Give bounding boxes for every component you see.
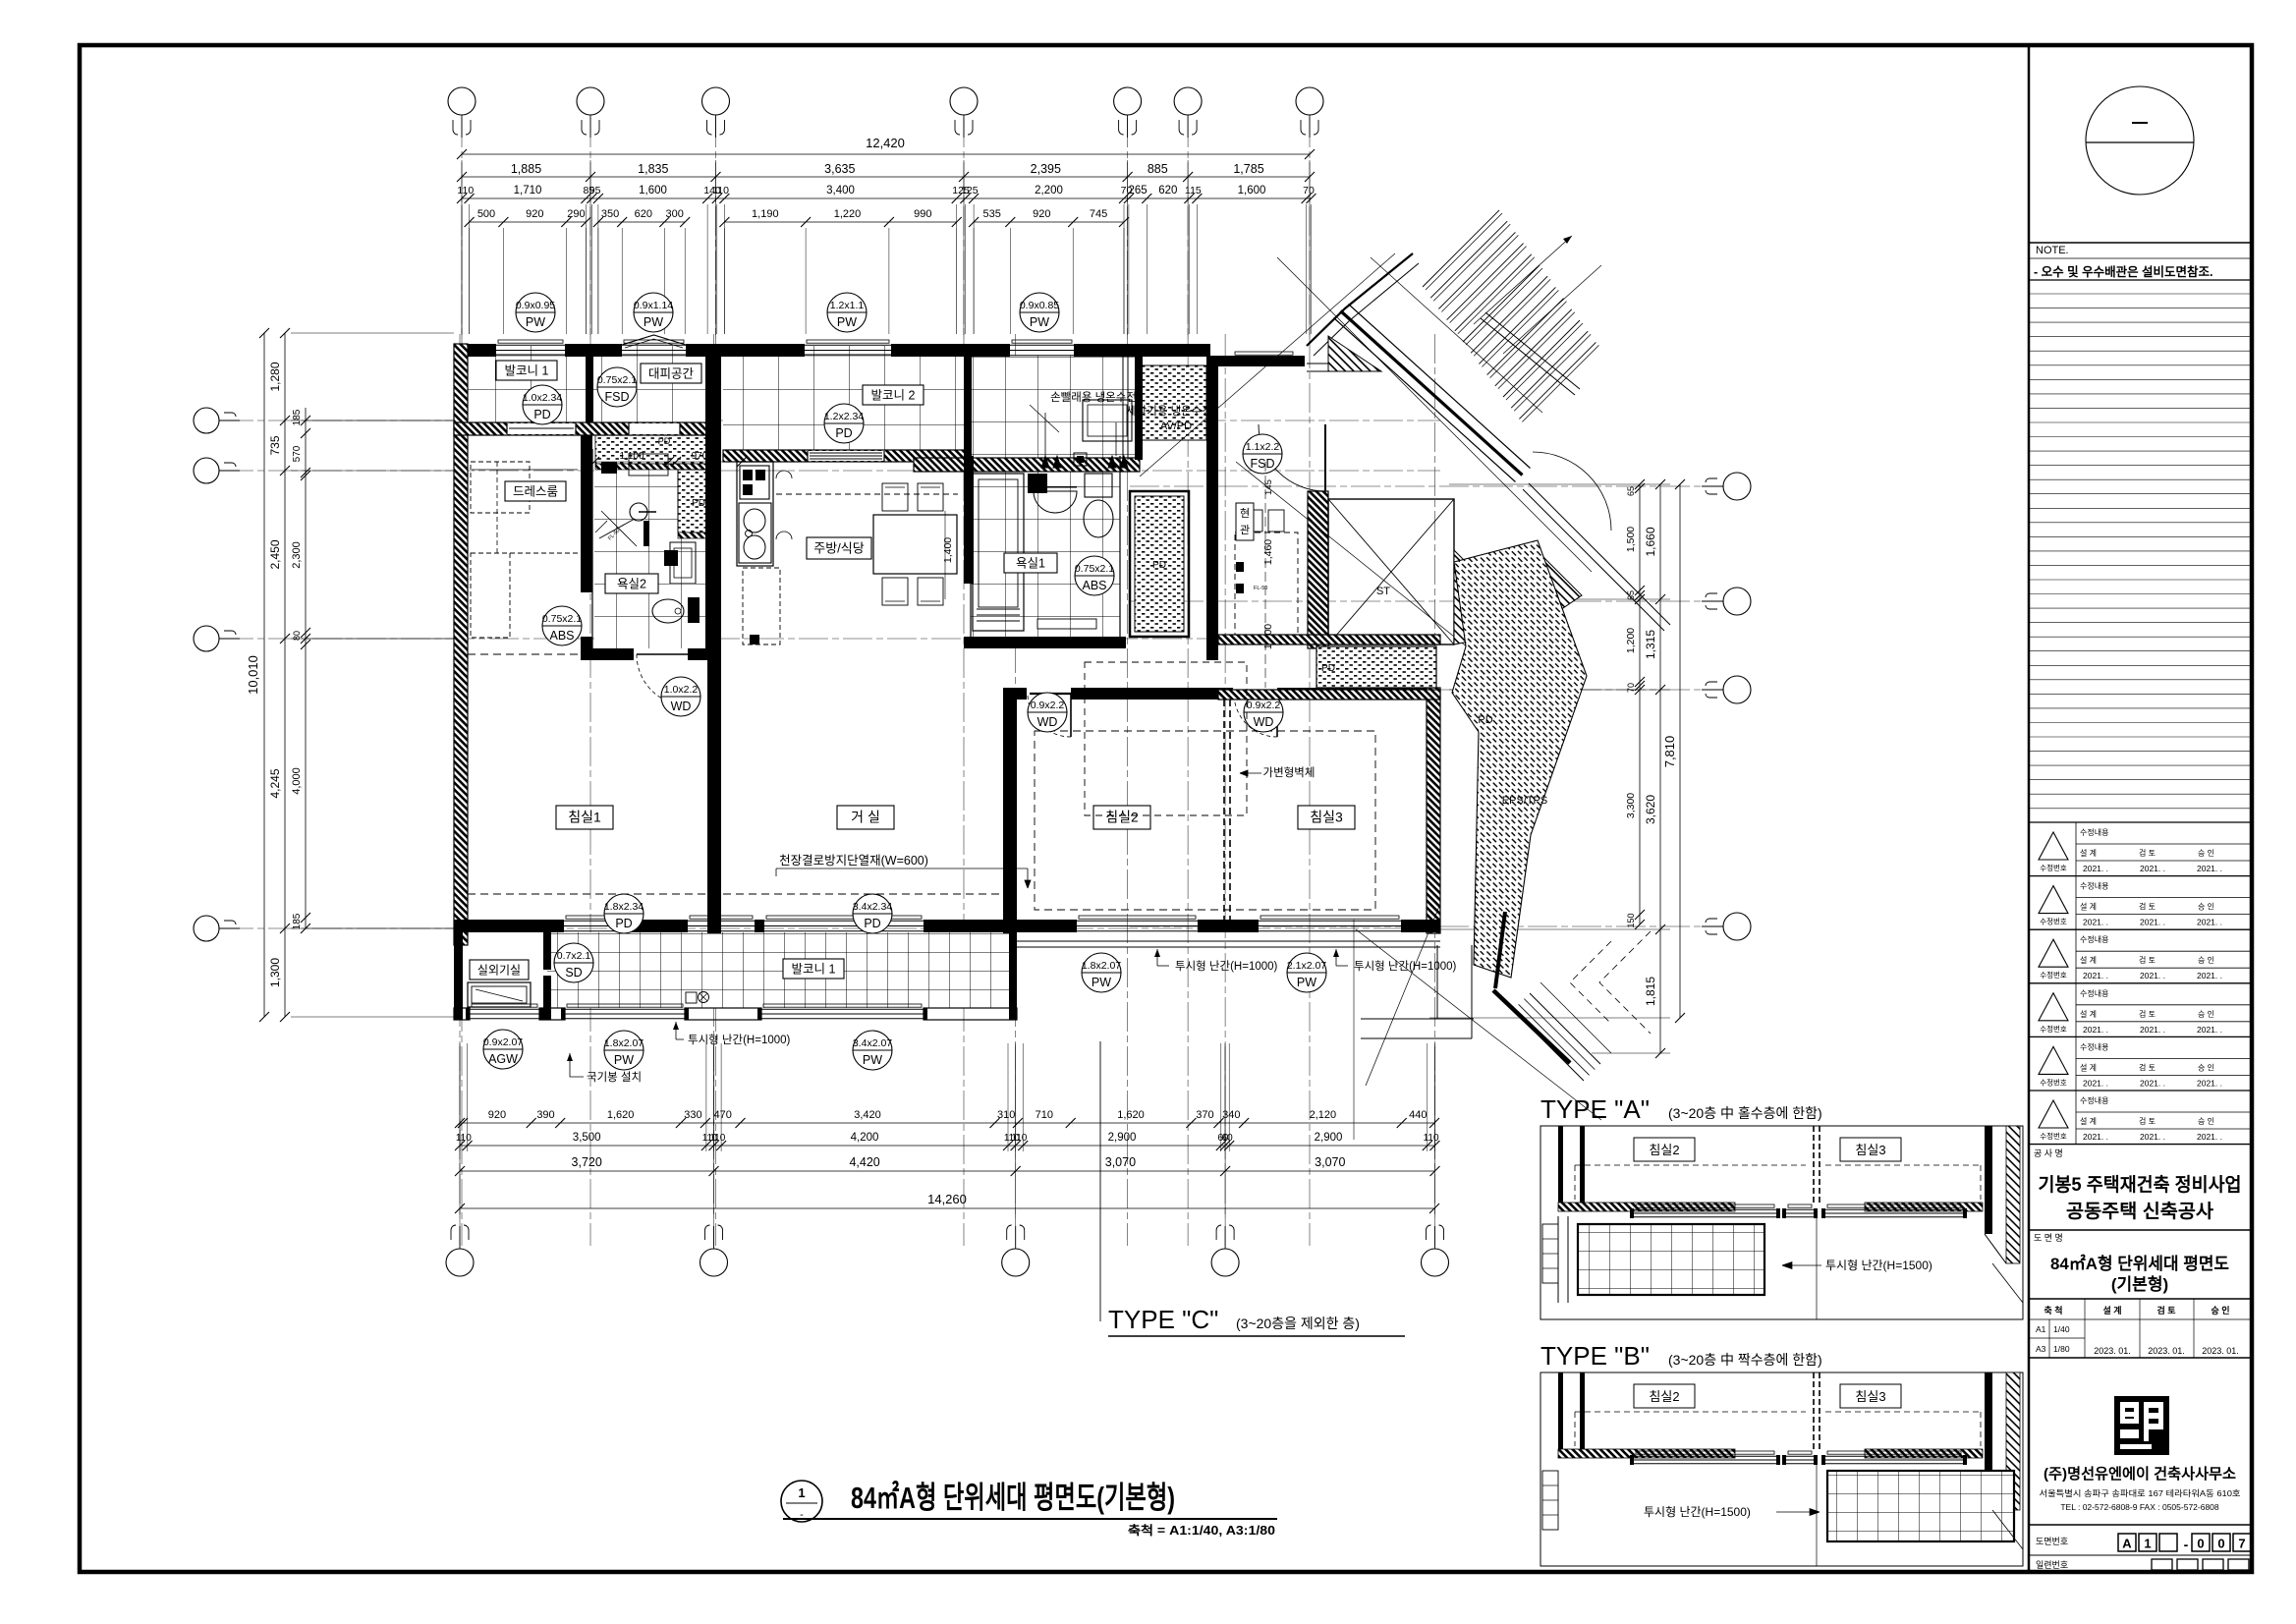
svg-text:2021. .: 2021. . (2140, 971, 2165, 980)
svg-text:PW: PW (526, 315, 545, 329)
svg-text:14,260: 14,260 (927, 1192, 967, 1206)
svg-text:1/80: 1/80 (2053, 1344, 2070, 1354)
svg-text:290: 290 (567, 208, 585, 220)
svg-text:70: 70 (1303, 185, 1315, 196)
svg-text:500: 500 (477, 208, 495, 220)
svg-text:350: 350 (601, 208, 619, 220)
svg-text:0.9x0.95: 0.9x0.95 (516, 300, 555, 311)
svg-text:수정번호: 수정번호 (2040, 1131, 2067, 1141)
svg-text:710: 710 (1036, 1109, 1053, 1121)
svg-text:투시형 난간(H=1000): 투시형 난간(H=1000) (688, 1034, 791, 1046)
svg-text:PD: PD (692, 498, 705, 509)
svg-text:1.2x1.1: 1.2x1.1 (830, 300, 865, 311)
svg-text:265: 265 (1129, 185, 1148, 196)
svg-text:2023. 01.: 2023. 01. (2094, 1346, 2131, 1356)
svg-text:0.7x2.1: 0.7x2.1 (557, 950, 591, 962)
svg-text:NOTE.: NOTE. (2036, 245, 2069, 256)
svg-text:투시형 난간(H=1500): 투시형 난간(H=1500) (1644, 1505, 1751, 1519)
svg-text:1.0x2.2: 1.0x2.2 (664, 684, 699, 696)
svg-text:FSD: FSD (605, 390, 630, 404)
svg-text:620: 620 (1158, 185, 1177, 196)
svg-text:2021. .: 2021. . (2140, 864, 2165, 873)
svg-text:욕실2: 욕실2 (617, 578, 646, 591)
svg-text:4,245: 4,245 (268, 768, 282, 798)
svg-text:990: 990 (914, 208, 931, 220)
svg-text:A1: A1 (2036, 1324, 2046, 1334)
svg-text:드레스룸: 드레스룸 (513, 485, 558, 499)
svg-text:0.75x2.1: 0.75x2.1 (597, 374, 637, 386)
svg-text:- 오수 및 우수배관은 설비도면참조.: - 오수 및 우수배관은 설비도면참조. (2034, 264, 2213, 279)
svg-text:수정내용: 수정내용 (2080, 881, 2108, 891)
svg-text:7,810: 7,810 (1662, 736, 1677, 768)
svg-text:4,000: 4,000 (291, 767, 303, 795)
svg-text:1,300: 1,300 (268, 958, 282, 987)
svg-text:1,600: 1,600 (1238, 185, 1266, 196)
svg-text:TYPE "C": TYPE "C" (1108, 1305, 1218, 1334)
svg-text:1,600: 1,600 (639, 185, 667, 196)
svg-text:65: 65 (1626, 486, 1636, 496)
svg-text:3,720: 3,720 (572, 1155, 602, 1169)
svg-text:PD: PD (864, 917, 880, 930)
svg-text:발코니 1: 발코니 1 (505, 364, 549, 378)
svg-text:PD: PD (658, 436, 671, 446)
svg-text:축척 = A1:1/40, A3:1/80: 축척 = A1:1/40, A3:1/80 (1128, 1523, 1275, 1538)
svg-text:투시형 난간(H=1000): 투시형 난간(H=1000) (1175, 960, 1278, 973)
svg-text:발코니 2: 발코니 2 (871, 389, 916, 403)
svg-text:0: 0 (2197, 1537, 2204, 1551)
svg-text:3,400: 3,400 (826, 185, 855, 196)
svg-text:(3~20층을 제외한 층): (3~20층을 제외한 층) (1236, 1316, 1360, 1331)
svg-text:2,120: 2,120 (1310, 1109, 1337, 1121)
svg-text:검 토: 검 토 (2156, 1305, 2176, 1316)
svg-text:330: 330 (684, 1109, 701, 1121)
svg-text:3,500: 3,500 (573, 1132, 601, 1144)
svg-text:손빨래용 냉온수전: 손빨래용 냉온수전 (1050, 391, 1137, 404)
svg-text:4,200: 4,200 (851, 1132, 879, 1144)
svg-text:1,710: 1,710 (514, 185, 542, 196)
svg-text:2021. .: 2021. . (2140, 1025, 2165, 1035)
svg-text:110: 110 (456, 1133, 472, 1144)
svg-text:3,635: 3,635 (824, 162, 855, 176)
svg-text:2021. .: 2021. . (2140, 918, 2165, 927)
svg-text:1: 1 (798, 1485, 805, 1500)
svg-text:PW: PW (837, 315, 857, 329)
svg-text:도 면 명: 도 면 명 (2034, 1233, 2063, 1243)
svg-text:2021. .: 2021. . (2140, 1078, 2165, 1088)
svg-text:440: 440 (1409, 1109, 1427, 1121)
svg-text:TYPE "A": TYPE "A" (1540, 1094, 1650, 1124)
svg-text:3,620: 3,620 (1644, 795, 1657, 824)
svg-text:검 토: 검 토 (2139, 1009, 2156, 1019)
svg-text:승 인: 승 인 (2211, 1306, 2229, 1316)
svg-text:60: 60 (1222, 1133, 1234, 1144)
svg-text:2021. .: 2021. . (2197, 918, 2222, 927)
svg-text:110: 110 (709, 1133, 725, 1144)
svg-text:(기본형): (기본형) (2111, 1274, 2168, 1294)
svg-text:일련번호: 일련번호 (2036, 1560, 2068, 1570)
svg-text:4,420: 4,420 (849, 1155, 879, 1169)
svg-text:310: 310 (997, 1109, 1015, 1121)
svg-text:승 인: 승 인 (2198, 848, 2214, 858)
svg-text:1,815: 1,815 (1644, 977, 1657, 1006)
svg-text:세탁기용 냉온수전: 세탁기용 냉온수전 (1126, 405, 1212, 418)
svg-text:1,400: 1,400 (942, 537, 954, 563)
svg-text:1.8x2.34: 1.8x2.34 (604, 901, 644, 913)
svg-text:침실3: 침실3 (1855, 1389, 1885, 1404)
svg-text:검 토: 검 토 (2139, 848, 2156, 858)
svg-text:ABS: ABS (549, 629, 574, 643)
svg-text:WD: WD (1037, 715, 1058, 729)
svg-text:3,420: 3,420 (854, 1109, 881, 1121)
svg-text:검 토: 검 토 (2139, 1062, 2156, 1072)
svg-text:설 계: 설 계 (2080, 902, 2097, 912)
svg-text:수정번호: 수정번호 (2040, 1024, 2067, 1034)
svg-text:3,070: 3,070 (1315, 1155, 1345, 1169)
svg-text:3.4x2.34: 3.4x2.34 (853, 901, 892, 913)
svg-text:1,620: 1,620 (607, 1109, 635, 1121)
svg-text:검 토: 검 토 (2139, 902, 2156, 912)
svg-text:0.9x1.14: 0.9x1.14 (634, 300, 673, 311)
svg-text:수정내용: 수정내용 (2080, 1095, 2108, 1105)
svg-text:ST: ST (1376, 586, 1390, 597)
svg-text:2,450: 2,450 (268, 539, 282, 569)
svg-text:2021. .: 2021. . (2083, 1025, 2108, 1035)
svg-text:수정내용: 수정내용 (2080, 934, 2108, 944)
svg-text:2021. .: 2021. . (2197, 1078, 2222, 1088)
svg-text:1.8x2.07: 1.8x2.07 (604, 1037, 644, 1049)
svg-text:FSD: FSD (1251, 457, 1275, 471)
svg-text:115: 115 (1185, 185, 1202, 196)
svg-text:거 실: 거 실 (851, 810, 880, 825)
svg-text:535: 535 (983, 208, 1001, 220)
svg-text:축 척: 축 척 (2044, 1305, 2062, 1316)
svg-text:대피공간: 대피공간 (648, 367, 695, 381)
svg-text:150: 150 (1626, 913, 1636, 927)
svg-text:PD: PD (1478, 714, 1492, 726)
svg-text:수정번호: 수정번호 (2040, 863, 2067, 872)
svg-text:EPS/TPS: EPS/TPS (1502, 795, 1547, 807)
svg-text:1,315: 1,315 (1644, 630, 1657, 659)
svg-text:A: A (2122, 1537, 2132, 1551)
svg-text:970: 970 (692, 451, 708, 462)
svg-text:주방/식당: 주방/식당 (813, 541, 864, 556)
svg-text:1.0x2.34: 1.0x2.34 (523, 392, 562, 404)
svg-text:WD: WD (1254, 715, 1274, 729)
svg-text:PD: PD (1152, 560, 1166, 571)
svg-text:침실3: 침실3 (1855, 1143, 1885, 1157)
svg-text:수정내용: 수정내용 (2080, 827, 2108, 837)
svg-text:PW: PW (1030, 315, 1049, 329)
svg-text:2021. .: 2021. . (2083, 864, 2108, 873)
svg-text:TEL : 02-572-6808-9 FAX : 0505: TEL : 02-572-6808-9 FAX : 0505-572-6808 (2060, 1502, 2219, 1512)
svg-text:0.75x2.1: 0.75x2.1 (542, 613, 582, 625)
svg-text:2,900: 2,900 (1108, 1132, 1137, 1144)
svg-text:185: 185 (292, 409, 303, 425)
svg-text:2.1x2.07: 2.1x2.07 (1287, 960, 1326, 972)
svg-text:0.9x0.85: 0.9x0.85 (1020, 300, 1059, 311)
svg-text:1,660: 1,660 (1644, 527, 1657, 556)
svg-text:390: 390 (536, 1109, 554, 1121)
svg-text:2,200: 2,200 (1035, 185, 1063, 196)
svg-text:125: 125 (961, 185, 979, 196)
svg-text:기봉5 주택재건축 정비사업: 기봉5 주택재건축 정비사업 (2039, 1174, 2242, 1196)
svg-text:PD: PD (533, 408, 550, 421)
svg-text:185: 185 (292, 913, 303, 929)
svg-text:국기봉 설치: 국기봉 설치 (587, 1071, 642, 1084)
svg-text:1.2x2.34: 1.2x2.34 (824, 411, 864, 422)
svg-text:수정번호: 수정번호 (2040, 917, 2067, 926)
svg-text:PW: PW (1092, 976, 1111, 989)
svg-text:침실2: 침실2 (1105, 810, 1139, 825)
svg-text:2021. .: 2021. . (2083, 971, 2108, 980)
svg-text:300: 300 (666, 208, 684, 220)
svg-text:승 인: 승 인 (2198, 1062, 2214, 1072)
svg-text:3.4x2.07: 3.4x2.07 (853, 1037, 892, 1049)
svg-text:침실2: 침실2 (1649, 1143, 1679, 1157)
svg-text:검 토: 검 토 (2139, 1116, 2156, 1126)
svg-text:(3~20층 中 짝수층에 한함): (3~20층 中 짝수층에 한함) (1668, 1352, 1822, 1368)
svg-text:공 사 명: 공 사 명 (2034, 1148, 2063, 1158)
svg-text:1,200: 1,200 (1625, 628, 1637, 653)
svg-text:WD: WD (671, 700, 692, 713)
svg-text:84㎡A형 단위세대 평면도: 84㎡A형 단위세대 평면도 (2050, 1254, 2229, 1273)
svg-text:TYPE "B": TYPE "B" (1540, 1341, 1650, 1371)
svg-text:승 인: 승 인 (2198, 902, 2214, 912)
svg-text:1/40: 1/40 (2053, 1324, 2070, 1334)
svg-text:70: 70 (1626, 683, 1636, 693)
svg-text:PW: PW (614, 1053, 634, 1067)
svg-text:수정내용: 수정내용 (2080, 1041, 2108, 1051)
svg-text:2021. .: 2021. . (2197, 864, 2222, 873)
svg-text:수정내용: 수정내용 (2080, 988, 2108, 998)
svg-text:침실1: 침실1 (568, 810, 601, 825)
svg-text:12,420: 12,420 (866, 136, 905, 150)
svg-text:1.1x2.2: 1.1x2.2 (1246, 441, 1280, 453)
svg-text:920: 920 (1033, 208, 1050, 220)
svg-text:설 계: 설 계 (2080, 1062, 2097, 1072)
svg-text:2,300: 2,300 (291, 541, 303, 569)
svg-text:-: - (2184, 1537, 2189, 1552)
svg-text:(3~20층 中 홀수층에 한함): (3~20층 中 홀수층에 한함) (1668, 1105, 1822, 1121)
svg-text:2023. 01.: 2023. 01. (2148, 1346, 2185, 1356)
svg-text:2021. .: 2021. . (2197, 971, 2222, 980)
svg-text:수정번호: 수정번호 (2040, 1077, 2067, 1087)
svg-text:승 인: 승 인 (2198, 1009, 2214, 1019)
svg-text:A3: A3 (2036, 1344, 2046, 1354)
svg-text:설 계: 설 계 (2080, 1009, 2097, 1019)
svg-text:PW: PW (644, 315, 663, 329)
svg-text:2021. .: 2021. . (2140, 1132, 2165, 1142)
svg-text:도면번호: 도면번호 (2036, 1537, 2068, 1546)
svg-text:1,220: 1,220 (834, 208, 862, 220)
svg-text:0.9x2.2: 0.9x2.2 (1031, 700, 1065, 711)
svg-text:AV/PD: AV/PD (1160, 420, 1192, 432)
svg-text:84㎡A형 단위세대 평면도(기본형): 84㎡A형 단위세대 평면도(기본형) (851, 1481, 1175, 1515)
svg-text:AGW: AGW (488, 1052, 518, 1066)
svg-text:0: 0 (2217, 1537, 2224, 1551)
svg-text:검 토: 검 토 (2139, 955, 2156, 965)
svg-text:관: 관 (1240, 524, 1250, 536)
svg-text:110: 110 (1011, 1133, 1027, 1144)
svg-text:수정번호: 수정번호 (2040, 970, 2067, 980)
svg-text:745: 745 (1090, 208, 1107, 220)
svg-text:110: 110 (1424, 1133, 1439, 1144)
svg-text:110: 110 (712, 185, 729, 196)
svg-text:(주)명선유엔에이 건축사사무소: (주)명선유엔에이 건축사사무소 (2044, 1465, 2236, 1483)
svg-text:실외기실: 실외기실 (477, 964, 521, 978)
svg-text:승 인: 승 인 (2198, 1116, 2214, 1126)
svg-text:1,460: 1,460 (1262, 539, 1274, 565)
svg-text:920: 920 (488, 1109, 506, 1121)
svg-text:1,500: 1,500 (1625, 527, 1637, 552)
svg-text:ABS: ABS (1082, 579, 1106, 592)
svg-text:1.8x2.07: 1.8x2.07 (1082, 960, 1121, 972)
svg-text:10,010: 10,010 (246, 655, 260, 695)
svg-text:설 계: 설 계 (2080, 955, 2097, 965)
svg-text:65: 65 (1626, 590, 1636, 600)
svg-text:2021. .: 2021. . (2197, 1025, 2222, 1035)
svg-text:95: 95 (589, 185, 601, 196)
svg-text:설 계: 설 계 (2080, 848, 2097, 858)
svg-text:80: 80 (292, 631, 302, 641)
svg-text:0.75x2.1: 0.75x2.1 (1075, 563, 1114, 575)
svg-text:1,620: 1,620 (1117, 1109, 1145, 1121)
svg-text:145: 145 (1263, 479, 1274, 495)
svg-text:2021. .: 2021. . (2197, 1132, 2222, 1142)
svg-text:서울특별시 송파구 송파대로 167 테라타워A동 610호: 서울특별시 송파구 송파대로 167 테라타워A동 610호 (2040, 1488, 2241, 1498)
svg-text:570: 570 (292, 445, 303, 462)
svg-text:2,395: 2,395 (1031, 162, 1061, 176)
svg-text:3,070: 3,070 (1105, 1155, 1136, 1169)
svg-text:PD: PD (1321, 663, 1335, 674)
svg-text:735: 735 (268, 435, 282, 455)
svg-text:1,835: 1,835 (638, 162, 668, 176)
svg-text:SD: SD (565, 966, 582, 980)
svg-text:885: 885 (1148, 162, 1168, 176)
svg-text:3,300: 3,300 (1625, 793, 1637, 818)
svg-text:투시형 난간(H=1000): 투시형 난간(H=1000) (1354, 960, 1457, 973)
svg-text:발코니 1: 발코니 1 (792, 963, 836, 977)
svg-text:1: 1 (2144, 1537, 2151, 1551)
svg-text:1,280: 1,280 (268, 362, 282, 391)
svg-text:PW: PW (1297, 976, 1316, 989)
svg-text:가변형벽체: 가변형벽체 (1263, 766, 1316, 779)
svg-text:욕실1: 욕실1 (1016, 557, 1045, 571)
svg-text:공동주택 신축공사: 공동주택 신축공사 (2066, 1201, 2214, 1222)
svg-text:PW: PW (863, 1053, 882, 1067)
svg-text:승 인: 승 인 (2198, 955, 2214, 965)
svg-text:2021. .: 2021. . (2083, 1078, 2108, 1088)
svg-text:620: 620 (635, 208, 652, 220)
svg-text:1,190: 1,190 (752, 208, 779, 220)
svg-text:920: 920 (526, 208, 543, 220)
svg-text:0.9x2.2: 0.9x2.2 (1247, 700, 1281, 711)
svg-text:2021. .: 2021. . (2083, 1132, 2108, 1142)
svg-text:설 계: 설 계 (2080, 1116, 2097, 1126)
svg-text:7: 7 (2238, 1537, 2245, 1551)
svg-text:2021. .: 2021. . (2083, 918, 2108, 927)
svg-text:2,900: 2,900 (1315, 1132, 1343, 1144)
svg-text:1,885: 1,885 (511, 162, 541, 176)
svg-text:110: 110 (457, 185, 474, 196)
svg-text:2023. 01.: 2023. 01. (2202, 1346, 2239, 1356)
svg-text:0.9x2.07: 0.9x2.07 (483, 1036, 523, 1048)
svg-text:470: 470 (714, 1109, 732, 1121)
svg-text:370: 370 (1196, 1109, 1213, 1121)
svg-text:1,785: 1,785 (1233, 162, 1263, 176)
svg-text:투시형 난간(H=1500): 투시형 난간(H=1500) (1825, 1259, 1932, 1272)
svg-text:현: 현 (1240, 507, 1250, 520)
svg-text:천장결로방지단열재(W=600): 천장결로방지단열재(W=600) (779, 853, 928, 868)
svg-text:PD: PD (835, 426, 852, 440)
svg-text:침실3: 침실3 (1310, 810, 1343, 825)
svg-text:설 계: 설 계 (2102, 1305, 2121, 1316)
svg-text:PD: PD (615, 917, 632, 930)
svg-text:1,100: 1,100 (619, 451, 644, 462)
svg-text:침실2: 침실2 (1649, 1389, 1679, 1404)
